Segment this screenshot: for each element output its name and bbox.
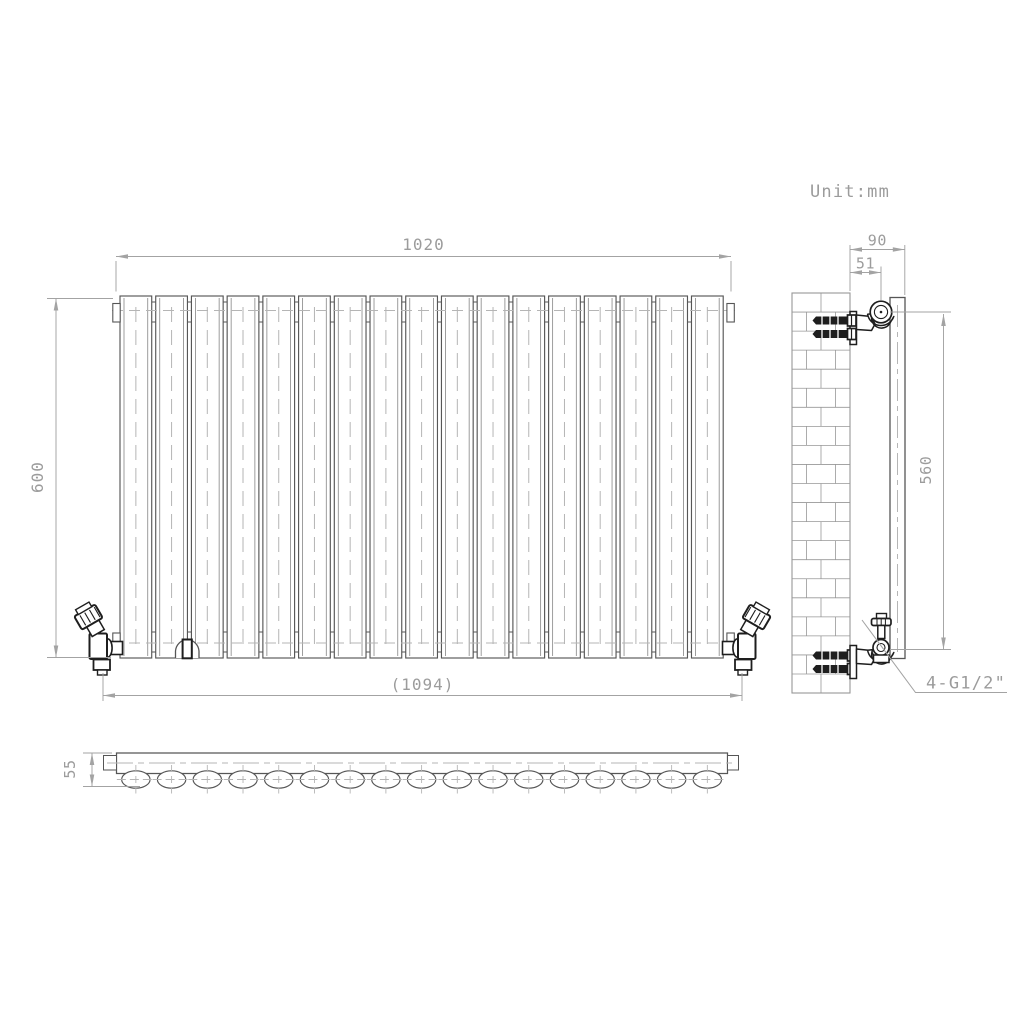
connection-thread-label: 4-G1/2" <box>926 674 1006 694</box>
radiator-drawing: Unit:mm 1020 600 (1094) 55 90 51 560 4-G… <box>0 0 1024 1024</box>
dim-label-wall-to-tube-center: 51 <box>856 255 875 273</box>
dim-label-height: 600 <box>28 461 47 493</box>
dim-label-connection-spacing: 560 <box>917 456 935 485</box>
dim-label-bracket-depth: 90 <box>868 232 887 250</box>
unit-label: Unit:mm <box>810 182 890 202</box>
front-view <box>72 296 774 675</box>
side-view <box>792 293 905 693</box>
technical-drawing-canvas: Unit:mm 1020 600 (1094) 55 90 51 560 4-G… <box>0 0 1024 1024</box>
dim-label-width-top: 1020 <box>402 235 445 254</box>
top-view <box>104 753 739 794</box>
dim-label-depth: 55 <box>61 759 79 778</box>
dim-label-width-overall: (1094) <box>391 675 455 694</box>
